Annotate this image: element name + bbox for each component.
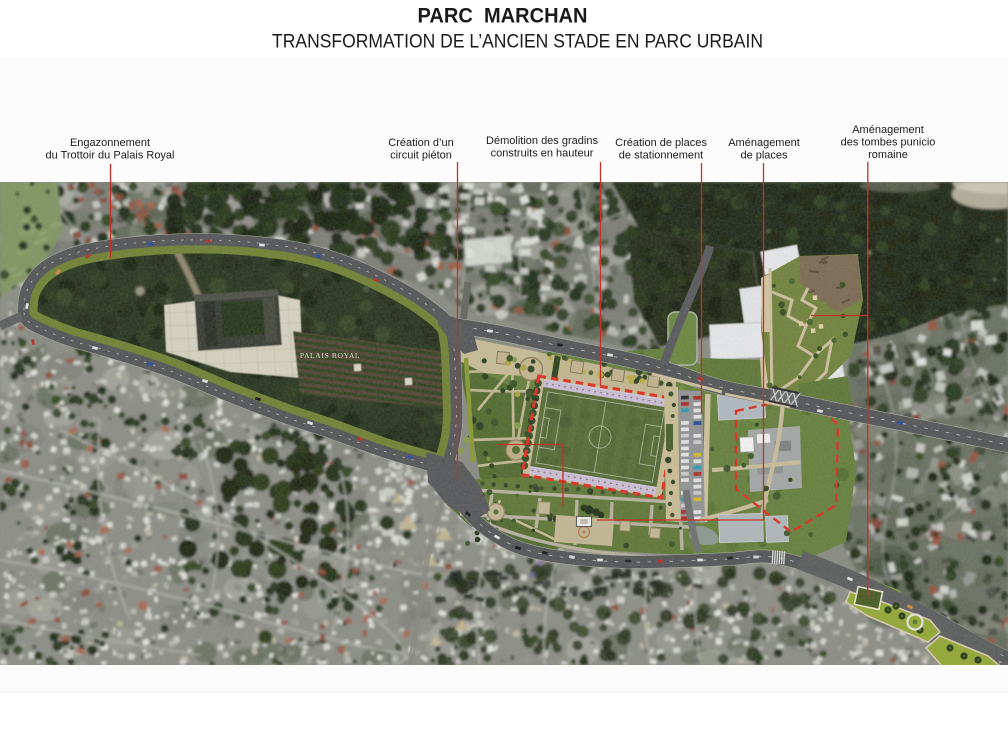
svg-text:Création de placesde stationne: Création de placesde stationnement [615,137,707,162]
svg-text:PARC MARCHAN: PARC MARCHAN [418,4,588,28]
svg-text:Création d’uncircuit piéton: Création d’uncircuit piéton [388,137,453,162]
svg-text:Démolition des gradinsconstrui: Démolition des gradinsconstruits en haut… [486,135,598,160]
svg-text:TRANSFORMATION DE L’ANCIEN STA: TRANSFORMATION DE L’ANCIEN STADE EN PARC… [272,31,763,53]
